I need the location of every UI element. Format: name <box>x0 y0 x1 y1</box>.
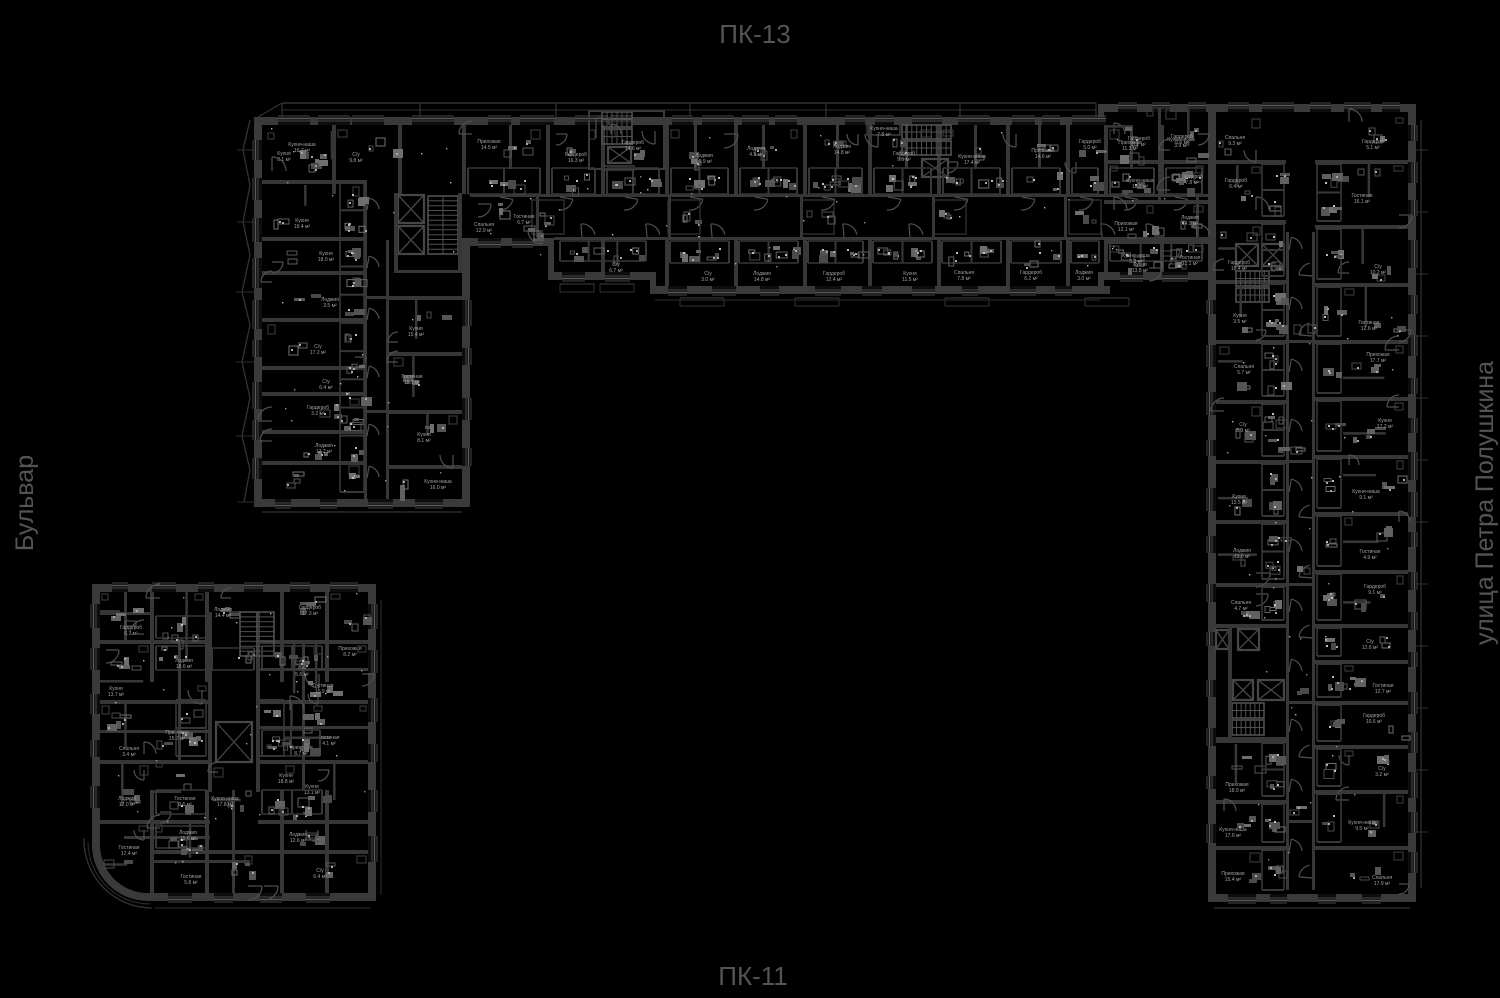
svg-text:14.8 м²: 14.8 м² <box>834 150 851 156</box>
svg-text:8.9 м²: 8.9 м² <box>1236 428 1250 434</box>
svg-text:4.1 м²: 4.1 м² <box>322 741 336 747</box>
svg-text:12.4 м²: 12.4 м² <box>826 277 843 283</box>
svg-text:17.4 м²: 17.4 м² <box>121 851 138 857</box>
svg-text:13.7 м²: 13.7 м² <box>108 692 125 698</box>
svg-text:13.8 м²: 13.8 м² <box>1132 268 1149 274</box>
svg-text:15.4 м²: 15.4 м² <box>408 332 425 338</box>
svg-text:12.6 м²: 12.6 м² <box>1362 645 1379 651</box>
svg-text:12.6 м²: 12.6 м² <box>1361 326 1378 332</box>
svg-text:17.9 м²: 17.9 м² <box>1374 881 1391 887</box>
svg-text:8.1 м²: 8.1 м² <box>417 438 431 444</box>
svg-text:7.8 м²: 7.8 м² <box>877 132 891 138</box>
svg-text:14.6 м²: 14.6 м² <box>1035 154 1052 160</box>
svg-text:4.9 м²: 4.9 м² <box>1363 555 1377 561</box>
svg-text:6.4 м²: 6.4 м² <box>313 874 327 880</box>
svg-text:3.0 м²: 3.0 м² <box>701 277 715 283</box>
svg-text:6.4 м²: 6.4 м² <box>319 385 333 391</box>
svg-text:10.6 м²: 10.6 м² <box>1366 719 1383 725</box>
svg-text:9.1 м²: 9.1 м² <box>1368 590 1382 596</box>
svg-text:ПК-13: ПК-13 <box>719 19 790 49</box>
svg-text:11.5 м²: 11.5 м² <box>902 277 918 283</box>
svg-text:13.6 м²: 13.6 м² <box>1234 554 1251 560</box>
svg-text:9.3 м²: 9.3 м² <box>1228 141 1242 147</box>
svg-text:7.8 м²: 7.8 м² <box>1185 180 1199 186</box>
svg-text:18.1 м²: 18.1 м² <box>404 380 421 386</box>
svg-text:19.4 м²: 19.4 м² <box>294 224 311 230</box>
svg-text:3.2 м²: 3.2 м² <box>311 411 325 417</box>
svg-text:17.2 м²: 17.2 м² <box>310 350 327 356</box>
svg-text:5.0 м²: 5.0 м² <box>1083 145 1097 151</box>
svg-text:6.7 м²: 6.7 м² <box>517 220 531 226</box>
svg-text:17.2 м²: 17.2 м² <box>316 449 333 455</box>
svg-text:13.1 м²: 13.1 м² <box>304 790 321 796</box>
svg-text:Бульвар: Бульвар <box>11 455 39 551</box>
svg-text:18.4 м²: 18.4 м² <box>1231 266 1248 272</box>
svg-text:6.6 м²: 6.6 м² <box>1175 140 1189 146</box>
svg-text:5.1 м²: 5.1 м² <box>1366 145 1380 151</box>
svg-text:улица Петра Полушкина: улица Петра Полушкина <box>1471 361 1499 645</box>
svg-text:16.3 м²: 16.3 м² <box>568 158 585 164</box>
svg-text:17.7 м²: 17.7 м² <box>1370 358 1387 364</box>
svg-text:19.9 м²: 19.9 м² <box>696 159 713 165</box>
svg-text:15.4 м²: 15.4 м² <box>1225 877 1242 883</box>
svg-text:4.7 м²: 4.7 м² <box>1234 606 1248 612</box>
svg-text:16.7 м²: 16.7 м² <box>294 148 311 154</box>
svg-text:7.8 м²: 7.8 м² <box>957 276 971 282</box>
svg-text:9.5 м²: 9.5 м² <box>1355 826 1369 832</box>
svg-text:17.2 м²: 17.2 м² <box>1377 424 1394 430</box>
svg-text:16.0 м²: 16.0 м² <box>430 485 447 491</box>
svg-text:5.7 м²: 5.7 м² <box>1237 370 1251 376</box>
svg-text:14.9 м²: 14.9 м² <box>1182 221 1199 227</box>
svg-text:3.0 м²: 3.0 м² <box>1077 276 1091 282</box>
svg-text:13.5 м²: 13.5 м² <box>1231 500 1248 506</box>
svg-text:9.5 м²: 9.5 м² <box>897 157 911 163</box>
svg-text:14.8 м²: 14.8 м² <box>754 277 771 283</box>
svg-text:8.2 м²: 8.2 м² <box>343 652 357 658</box>
svg-text:6.2 м²: 6.2 м² <box>1024 276 1038 282</box>
svg-text:3.2 м²: 3.2 м² <box>1129 259 1143 265</box>
svg-text:17.4 м²: 17.4 м² <box>964 160 981 166</box>
svg-text:15.2 м²: 15.2 м² <box>169 736 186 742</box>
svg-text:12.9 м²: 12.9 м² <box>476 228 493 234</box>
svg-text:16.1 м²: 16.1 м² <box>1354 199 1371 205</box>
svg-text:14.4 м²: 14.4 м² <box>215 613 232 619</box>
svg-text:17.3 м²: 17.3 м² <box>302 611 319 617</box>
svg-text:17.0 м²: 17.0 м² <box>119 802 136 808</box>
svg-text:18.2 м²: 18.2 м² <box>1132 184 1149 190</box>
svg-text:ПК-11: ПК-11 <box>718 961 787 991</box>
svg-text:9.8 м²: 9.8 м² <box>349 158 363 164</box>
svg-text:6.7 м²: 6.7 м² <box>609 268 623 274</box>
svg-text:3.5 м²: 3.5 м² <box>1233 319 1247 325</box>
svg-text:6.4 м²: 6.4 м² <box>1229 184 1243 190</box>
svg-text:3.4 м²: 3.4 м² <box>122 752 136 758</box>
svg-text:3.2 м²: 3.2 м² <box>1375 772 1389 778</box>
svg-text:14.5 м²: 14.5 м² <box>481 145 498 151</box>
svg-text:17.8 м²: 17.8 м² <box>217 802 234 808</box>
svg-text:11.3 м²: 11.3 м² <box>1122 146 1138 152</box>
svg-text:5.8 м²: 5.8 м² <box>184 880 198 886</box>
svg-text:12.1 м²: 12.1 м² <box>1118 227 1135 233</box>
svg-text:5.6 м²: 5.6 м² <box>295 672 309 678</box>
svg-text:18.8 м²: 18.8 м² <box>278 779 295 785</box>
svg-text:10.2 м²: 10.2 м² <box>1370 270 1387 276</box>
svg-text:14.6 м²: 14.6 м² <box>625 146 642 152</box>
svg-text:10.9 м²: 10.9 м² <box>315 689 332 695</box>
svg-text:12.6 м²: 12.6 м² <box>290 838 307 844</box>
svg-text:12.7 м²: 12.7 м² <box>1375 689 1392 695</box>
svg-text:18.6 м²: 18.6 м² <box>176 664 193 670</box>
svg-text:9.1 м²: 9.1 м² <box>1359 495 1373 501</box>
svg-text:17.6 м²: 17.6 м² <box>1225 833 1242 839</box>
svg-text:4.9 м²: 4.9 м² <box>749 152 763 158</box>
svg-text:11.1 м²: 11.1 м² <box>1182 261 1198 267</box>
svg-text:8.1 м²: 8.1 м² <box>277 157 291 163</box>
svg-text:3.5 м²: 3.5 м² <box>323 303 337 309</box>
svg-text:18.0 м²: 18.0 м² <box>318 257 335 263</box>
svg-text:18.9 м²: 18.9 м² <box>1229 788 1246 794</box>
